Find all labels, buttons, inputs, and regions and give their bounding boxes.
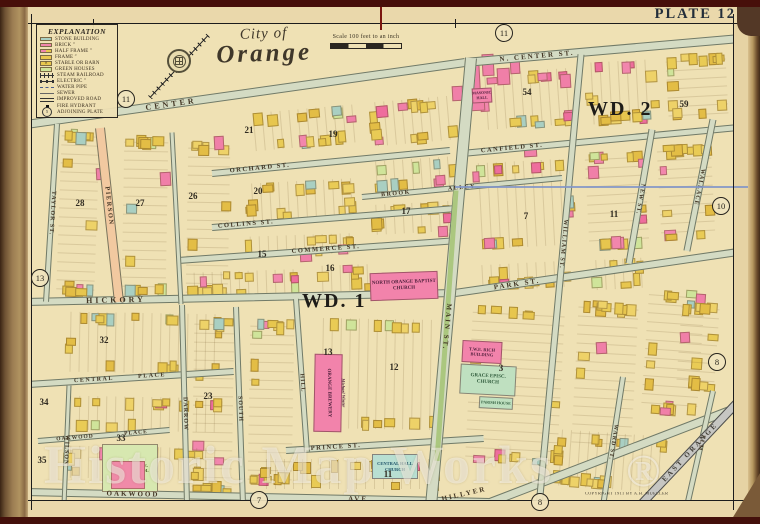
- lot-line: [150, 313, 152, 373]
- block-number: 59: [680, 99, 689, 109]
- lot-line: [351, 105, 355, 143]
- page-edge-right: [748, 0, 760, 524]
- building: [105, 361, 115, 372]
- building: [95, 315, 104, 323]
- building: [305, 180, 317, 189]
- lot-line: [681, 316, 719, 319]
- adjoining-plate-10: 10: [712, 197, 730, 215]
- building: [91, 420, 100, 430]
- building: [472, 172, 480, 183]
- building: [346, 115, 357, 123]
- block-number: 3: [499, 363, 504, 373]
- landmark-orange-brewery: ORANGE BREWERY Michael Winter: [313, 354, 342, 432]
- street-label-south: SOUTH: [236, 396, 243, 422]
- scale-text: Scale 100 feet to an inch: [328, 34, 404, 40]
- building: [418, 226, 426, 234]
- lot-line: [577, 333, 637, 337]
- building: [352, 266, 363, 274]
- lot-line: [348, 319, 351, 429]
- lot-line: [249, 416, 293, 417]
- building: [531, 162, 541, 173]
- lot-line: [58, 234, 96, 236]
- lot-line: [57, 261, 95, 263]
- street-label-darrow: DARROW: [181, 397, 188, 431]
- registered-trademark-icon: ®: [626, 444, 660, 497]
- legend-item-label: GREEN HOUSES: [55, 67, 95, 72]
- legend-box: EXPLANATION STONE BUILDINGBRICK ″HALF FR…: [36, 24, 118, 118]
- building: [344, 197, 355, 206]
- landmark-label: NORTH ORANGE BAPTIST CHURCH: [371, 279, 437, 293]
- building: [698, 108, 707, 119]
- building: [199, 320, 209, 330]
- building: [555, 160, 565, 171]
- lot-line: [667, 76, 727, 80]
- building: [328, 180, 340, 189]
- building: [577, 351, 589, 361]
- building: [589, 152, 599, 160]
- block-number: 19: [329, 129, 338, 139]
- block-number: 23: [204, 391, 213, 401]
- building: [315, 235, 327, 244]
- building: [290, 275, 298, 283]
- building: [419, 102, 428, 113]
- lot-line: [505, 162, 510, 248]
- lot-line: [642, 393, 698, 397]
- half-frame-swatch: [40, 49, 52, 54]
- adjoining-plate-circle: 5: [40, 108, 54, 116]
- building: [252, 112, 263, 125]
- lot-line: [61, 153, 99, 155]
- building: [245, 273, 253, 282]
- building: [125, 398, 135, 411]
- building: [611, 236, 622, 249]
- building: [342, 265, 352, 273]
- city-block: [55, 127, 101, 296]
- lot-line: [288, 110, 292, 148]
- lot-line: [249, 389, 293, 390]
- building: [494, 165, 503, 175]
- brick-building: [160, 172, 172, 187]
- sewer-line: [40, 93, 54, 94]
- lot-line: [57, 279, 95, 281]
- lot-line: [572, 423, 632, 427]
- building: [621, 281, 632, 289]
- building: [75, 132, 86, 145]
- lot-line: [186, 314, 188, 374]
- building: [246, 204, 257, 217]
- building: [397, 102, 408, 111]
- building: [235, 272, 243, 280]
- brick-building: [560, 74, 572, 89]
- lot-line: [366, 319, 369, 429]
- legend-item-label: STEAM RAILROAD: [57, 73, 104, 78]
- city-block: [570, 298, 640, 449]
- lot-line: [188, 166, 230, 167]
- building: [412, 323, 420, 333]
- scale-bar: [330, 43, 402, 49]
- lot-line: [58, 243, 96, 245]
- legend-item-label: IMPROVED ROAD: [57, 97, 101, 102]
- scale-block: Scale 100 feet to an inch: [328, 34, 404, 49]
- building: [527, 74, 536, 84]
- building: [417, 132, 428, 141]
- building: [277, 139, 285, 148]
- improved-road-line: [40, 98, 54, 102]
- street-label-hickory: HICKORY: [86, 295, 146, 305]
- building: [672, 107, 683, 118]
- building: [85, 220, 97, 231]
- building: [346, 320, 356, 331]
- lot-line: [187, 220, 229, 221]
- frame-swatch: [40, 55, 52, 60]
- building: [152, 136, 164, 147]
- building: [376, 164, 387, 175]
- watermark-text: Historic Map Works: [44, 434, 644, 496]
- building: [659, 166, 667, 175]
- building: [213, 399, 222, 408]
- lot-line: [194, 333, 234, 334]
- block-number: 54: [523, 87, 532, 97]
- lot-line: [473, 312, 565, 317]
- street-cross-street: [170, 132, 184, 304]
- lot-line: [249, 425, 293, 426]
- building: [484, 237, 496, 249]
- lot-line: [249, 407, 293, 408]
- building: [221, 201, 232, 212]
- building: [509, 117, 521, 127]
- lot-line: [392, 101, 396, 145]
- building: [486, 77, 497, 85]
- stone-swatch: [40, 37, 52, 42]
- lot-line: [589, 228, 649, 232]
- building: [267, 114, 279, 127]
- legend-item-label: STONE BUILDING: [55, 37, 99, 42]
- building: [306, 136, 315, 148]
- lot-line: [323, 180, 326, 218]
- adjoining-plate-8: 8: [708, 353, 726, 371]
- building: [598, 301, 608, 309]
- building: [252, 331, 262, 339]
- building: [667, 81, 679, 91]
- water-pipe-line: [40, 87, 54, 88]
- landmark-parish-house: PARISH HOUSE: [479, 396, 514, 410]
- lot-line: [375, 319, 378, 429]
- building: [287, 319, 295, 329]
- landmark-north-orange-baptist-church: NORTH ORANGE BAPTIST CHURCH: [370, 271, 439, 301]
- building: [535, 120, 545, 128]
- lot-line: [124, 151, 168, 152]
- city-block: [314, 263, 377, 293]
- neatline-tick: [455, 19, 456, 28]
- legend-item-label: WATER PIPE: [57, 85, 87, 90]
- block-number: 12: [390, 362, 399, 372]
- lot-line: [472, 321, 564, 326]
- building: [667, 57, 677, 69]
- lot-line: [472, 330, 564, 335]
- lot-line: [123, 241, 167, 242]
- lot-line: [142, 397, 143, 431]
- building: [575, 368, 585, 379]
- page-margin: [733, 23, 748, 501]
- building: [66, 338, 76, 346]
- building: [329, 235, 337, 244]
- lot-line: [188, 157, 230, 158]
- building: [660, 407, 671, 416]
- adjoining-plate-11: 11: [495, 24, 513, 42]
- city-block: [675, 299, 721, 392]
- lot-line: [59, 216, 97, 218]
- lot-line: [487, 163, 492, 249]
- book-spine: [0, 0, 28, 524]
- building: [398, 180, 409, 190]
- building: [76, 419, 88, 432]
- lot-line: [574, 396, 634, 400]
- building: [715, 53, 723, 65]
- building: [152, 399, 162, 408]
- building: [410, 101, 418, 114]
- lot-line: [384, 204, 386, 234]
- lot-line: [573, 405, 633, 409]
- neatline-bottom: [18, 500, 744, 501]
- legend-item-label: SEWER: [57, 91, 75, 96]
- city-block: [62, 395, 225, 434]
- building: [262, 184, 273, 193]
- block-number: 21: [245, 125, 254, 135]
- lot-line: [250, 353, 294, 354]
- building: [433, 159, 441, 169]
- neatline-left: [31, 14, 32, 510]
- landmark-grace-episc-church: GRACE EPISC. CHURCH: [459, 364, 516, 397]
- brick-building: [497, 68, 511, 86]
- lot-line: [194, 342, 234, 343]
- building: [644, 378, 654, 390]
- lot-line: [668, 94, 728, 98]
- map-title: City of Orange: [204, 24, 323, 70]
- water-pipe-line: [455, 186, 757, 188]
- building: [409, 418, 421, 430]
- legend-rows: STONE BUILDINGBRICK ″HALF FRAME ″FRAME ″…: [40, 36, 114, 115]
- lot-line: [123, 187, 167, 188]
- legend-title: EXPLANATION: [40, 27, 114, 36]
- building: [384, 418, 395, 427]
- building: [251, 379, 259, 386]
- building: [412, 162, 421, 175]
- survey-monument-inner: [173, 55, 186, 68]
- lot-line: [193, 387, 233, 388]
- building: [591, 277, 603, 289]
- building: [199, 276, 207, 287]
- building: [491, 306, 502, 314]
- building: [277, 322, 284, 335]
- building: [594, 62, 603, 72]
- map-title-line2: Orange: [205, 38, 324, 70]
- building: [688, 53, 698, 65]
- block-number: 34: [40, 397, 49, 407]
- building: [257, 319, 265, 330]
- legend-item-label: HALF FRAME ″: [55, 49, 92, 54]
- survey-monument-icon: [167, 49, 191, 73]
- building: [600, 238, 611, 250]
- brick-building: [438, 226, 449, 238]
- brick-building: [588, 166, 600, 180]
- building: [154, 285, 164, 294]
- lot-line: [58, 252, 96, 254]
- lot-line: [677, 370, 715, 373]
- legend-item-label: FIRE HYDRANT: [57, 104, 96, 109]
- lot-line: [122, 268, 166, 269]
- block-number: 26: [189, 191, 198, 201]
- building: [667, 292, 679, 300]
- block-number: 20: [254, 186, 263, 196]
- lot-line: [340, 265, 342, 291]
- street-label-orchard: ORCHARD ST.: [229, 162, 290, 175]
- building: [512, 238, 524, 247]
- lot-line: [122, 250, 166, 251]
- lot-line: [680, 325, 718, 328]
- building: [308, 108, 320, 118]
- adjoining-plate-13: 13: [31, 269, 49, 287]
- building: [663, 144, 675, 152]
- building: [509, 307, 518, 319]
- lot-line: [574, 387, 634, 391]
- building: [646, 360, 656, 369]
- lot-line: [123, 214, 167, 215]
- lot-line: [123, 232, 167, 233]
- brick-building: [596, 342, 608, 355]
- building: [342, 183, 354, 193]
- lot-line: [514, 161, 519, 247]
- building: [63, 158, 73, 168]
- lot-line: [123, 223, 167, 224]
- building: [163, 398, 171, 406]
- building: [601, 153, 609, 161]
- building: [74, 397, 82, 407]
- lot-line: [523, 161, 528, 247]
- legend-item-label: STABLE OR BARN: [55, 61, 100, 66]
- brick-building: [214, 136, 225, 151]
- building: [699, 303, 711, 314]
- building: [512, 165, 520, 174]
- building: [362, 420, 370, 431]
- building: [717, 99, 728, 111]
- lot-line: [194, 360, 234, 361]
- lot-line: [124, 169, 168, 170]
- building: [392, 322, 403, 333]
- building: [538, 72, 548, 81]
- block-number: 7: [524, 211, 529, 221]
- stable-swatch: ✕: [40, 61, 52, 66]
- lot-line: [402, 319, 405, 429]
- atlas-page: CENTERN. CENTER ST.ORCHARD ST.BROOKALLEY…: [0, 0, 760, 524]
- building: [707, 334, 718, 342]
- plate-label: PLATE 12: [640, 6, 736, 23]
- lot-line: [186, 265, 228, 266]
- block-number: 28: [76, 198, 85, 208]
- lot-line: [123, 313, 125, 373]
- building: [647, 342, 657, 355]
- book-cover-edge-bottom: [0, 517, 760, 524]
- lot-line: [60, 180, 98, 182]
- landmark-t-w-e-rich-building: T.W.E. RICH BUILDING: [461, 340, 502, 364]
- lot-line: [122, 277, 166, 278]
- legend-item-label: BRICK ″: [55, 43, 75, 48]
- lot-line: [60, 189, 98, 191]
- block-number: 32: [100, 335, 109, 345]
- building: [686, 403, 696, 416]
- building: [330, 319, 339, 332]
- building: [318, 138, 327, 147]
- lot-line: [188, 184, 230, 185]
- block-number: 27: [136, 198, 145, 208]
- city-block: [664, 50, 729, 121]
- landmark-sublabel: Michael Winter: [341, 379, 347, 408]
- building: [662, 209, 672, 217]
- legend-item: STEAM RAILROAD: [40, 73, 114, 79]
- building: [317, 271, 329, 281]
- lot-line: [578, 324, 638, 328]
- legend-item-label: ELECTRIC ″: [57, 79, 86, 84]
- building: [523, 311, 535, 319]
- building: [195, 401, 203, 408]
- building: [374, 320, 382, 332]
- block-number: 11: [610, 209, 619, 219]
- lot-line: [550, 160, 555, 246]
- building: [306, 237, 316, 246]
- building: [691, 378, 701, 391]
- lot-line: [411, 320, 414, 430]
- adjoining-plate-symbol: 5: [42, 107, 52, 117]
- lot-line: [250, 344, 294, 345]
- neatline-right: [733, 14, 734, 510]
- building: [696, 231, 705, 240]
- greenhouse-swatch: [40, 67, 52, 72]
- lot-line: [578, 316, 638, 320]
- building: [214, 318, 225, 331]
- building: [338, 130, 346, 142]
- city-block: [121, 134, 170, 297]
- book-cover-edge-top: [0, 0, 760, 7]
- landmark-masonic-hall: MASONIC HALL: [472, 87, 493, 103]
- building: [645, 70, 657, 83]
- electric-line: [40, 80, 54, 83]
- lot-line: [420, 320, 423, 430]
- building: [64, 131, 73, 141]
- lot-line: [194, 351, 234, 352]
- lot-line: [659, 194, 713, 197]
- building: [251, 359, 259, 372]
- building: [131, 313, 139, 320]
- building: [107, 313, 115, 326]
- building: [583, 301, 591, 314]
- lot-line: [357, 319, 360, 429]
- lot-line: [573, 414, 633, 418]
- lot-line: [205, 398, 206, 432]
- landmark-label: T.W.E. RICH BUILDING: [463, 346, 501, 358]
- building: [198, 145, 210, 156]
- building: [169, 361, 176, 372]
- lot-line: [60, 171, 98, 173]
- landmark-label: GRACE EPISC. CHURCH: [461, 373, 516, 387]
- city-block: [244, 103, 359, 153]
- building: [371, 218, 382, 230]
- lot-line: [132, 313, 134, 373]
- block-number: 13: [324, 347, 333, 357]
- landmark-label: MASONIC HALL: [472, 90, 492, 100]
- building: [92, 398, 100, 407]
- ward-2-label: WD. 2: [588, 98, 652, 121]
- building: [140, 138, 151, 149]
- building: [375, 105, 388, 118]
